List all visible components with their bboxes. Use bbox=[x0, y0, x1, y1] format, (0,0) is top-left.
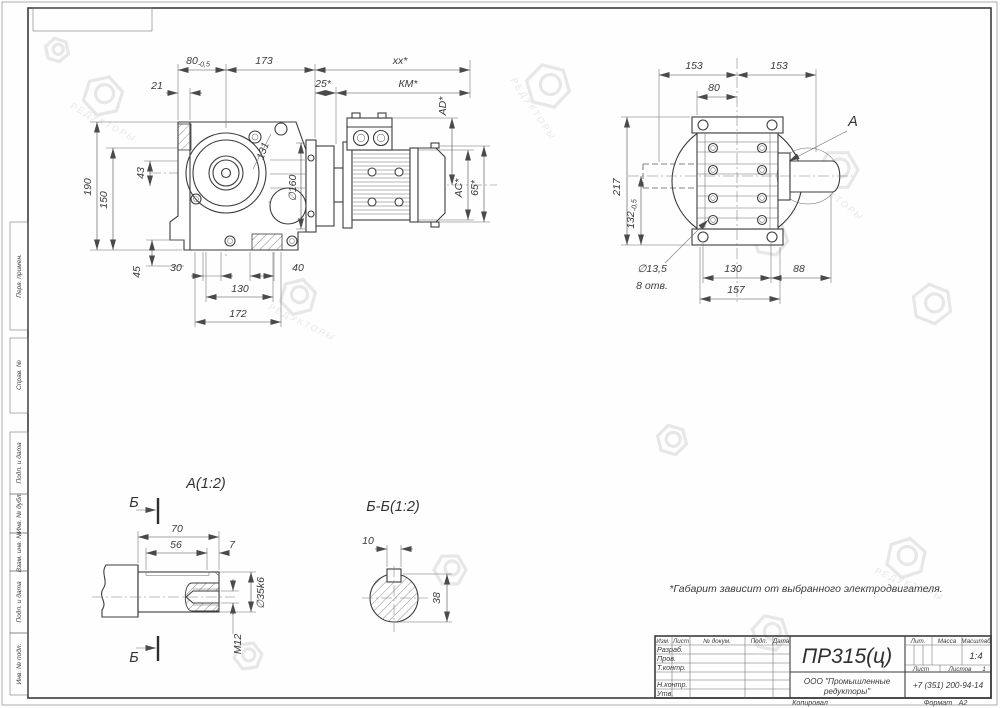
side-view: 80-0,5 173 xx* 21 25* КМ* 190 150 43 45 … bbox=[82, 55, 497, 327]
tb-row-nkontr: Н.контр. bbox=[657, 680, 687, 689]
copied-label: Копировал bbox=[792, 698, 828, 707]
dim-30: 30 bbox=[170, 262, 182, 274]
dim-56: 56 bbox=[170, 539, 182, 551]
dim-150: 150 bbox=[98, 191, 110, 209]
dim-88: 88 bbox=[793, 263, 805, 275]
format-value: А2 bbox=[958, 698, 968, 707]
format-label: Формат bbox=[924, 698, 953, 707]
company-phone: +7 (351) 200-94-14 bbox=[913, 681, 984, 690]
dim-153-left: 153 bbox=[685, 60, 703, 72]
tb-sheets-value: 1 bbox=[982, 666, 986, 673]
dim-25: 25* bbox=[314, 78, 332, 90]
company-line2: редукторы" bbox=[823, 687, 871, 696]
dim-45: 45 bbox=[131, 266, 143, 278]
section-mark-b-bottom: Б bbox=[129, 650, 138, 666]
doc-number: ПР315(ц) bbox=[802, 645, 892, 668]
tb-sheets-label: Листов bbox=[948, 666, 973, 673]
tb-col-list: Лист bbox=[672, 638, 689, 645]
drawing-sheet: РЕДУКТОРЫ РЕДУКТОРЫ РЕДУКТОРЫ РЕДУКТОРЫ … bbox=[0, 0, 1000, 708]
dim-80: 80-0,5 bbox=[186, 55, 210, 69]
dim-ac: AC* bbox=[453, 178, 465, 199]
view-a-label: А bbox=[847, 114, 858, 130]
dim-80-front: 80 bbox=[708, 82, 720, 94]
front-view: 153 153 80 217 132-0,5 130 88 157 ∅13,5 … bbox=[611, 58, 858, 305]
dim-21: 21 bbox=[150, 80, 163, 92]
dim-157: 157 bbox=[727, 284, 746, 296]
tb-row-utv: Утв. bbox=[656, 689, 673, 698]
dim-7: 7 bbox=[229, 539, 236, 551]
dim-40: 40 bbox=[292, 262, 304, 274]
dim-172: 172 bbox=[229, 308, 247, 320]
section-b-title: Б-Б(1:2) bbox=[366, 499, 420, 515]
dim-10: 10 bbox=[362, 535, 374, 547]
dim-xx: xx* bbox=[392, 55, 409, 67]
terminal-box bbox=[347, 118, 392, 150]
tb-scale-label: Масштаб bbox=[961, 637, 991, 645]
margin-label: Подп. и дата bbox=[15, 581, 23, 623]
dim-holes-count: 8 отв. bbox=[636, 280, 668, 292]
tb-scale-value: 1:4 bbox=[969, 651, 982, 662]
margin-label: Инв. № подл. bbox=[15, 643, 23, 684]
dim-38: 38 bbox=[431, 592, 443, 604]
dim-130-front: 130 bbox=[724, 263, 742, 275]
tb-row-prov: Пров. bbox=[657, 654, 676, 663]
tb-row-razrab: Разраб. bbox=[657, 645, 683, 654]
footnote: *Габарит зависит от выбранного электродв… bbox=[669, 583, 942, 595]
dim-160: ∅160 bbox=[287, 175, 299, 202]
detail-a-title: А(1:2) bbox=[185, 476, 226, 492]
dim-65: 65* bbox=[469, 179, 481, 196]
section-view-b: Б-Б(1:2) 10 38 bbox=[362, 499, 452, 632]
margin-label: Справ. № bbox=[16, 360, 23, 390]
top-left-stamp bbox=[33, 8, 152, 31]
dim-153-right: 153 bbox=[770, 60, 788, 72]
watermark-text: РЕДУКТОРЫ bbox=[69, 101, 139, 144]
detail-view-a: А(1:2) Б Б bbox=[92, 476, 267, 666]
dim-70: 70 bbox=[171, 523, 183, 535]
tb-lit-label: Лит. bbox=[910, 638, 926, 645]
tb-col-izm: Изм. bbox=[656, 638, 669, 645]
dim-43: 43 bbox=[135, 167, 147, 179]
watermark-text: РЕДУКТОРЫ bbox=[267, 302, 338, 343]
dim-ad: AD* bbox=[437, 96, 449, 117]
dim-217: 217 bbox=[611, 177, 623, 197]
dim-holes-dia: ∅13,5 bbox=[637, 263, 667, 275]
tb-col-podp: Подп. bbox=[751, 637, 768, 645]
margin-label: Инв. № дубл. bbox=[15, 493, 23, 534]
tb-col-data: Дата bbox=[772, 638, 790, 645]
company-line1: ООО "Промышленные bbox=[804, 677, 891, 686]
section-mark-b-top: Б bbox=[129, 495, 138, 511]
margin-label: Подп. и дата bbox=[15, 442, 23, 484]
tb-sheet-label: Лист bbox=[912, 666, 929, 673]
dim-km: КМ* bbox=[398, 78, 418, 90]
dim-m12: M12 bbox=[232, 634, 244, 655]
tb-row-tkontr: Т.контр. bbox=[657, 663, 686, 672]
margin-label: Перв. примен. bbox=[16, 254, 23, 298]
dim-130: 130 bbox=[231, 283, 249, 295]
margin-column: Перв. примен. Справ. № Подп. и дата Инв.… bbox=[10, 222, 28, 695]
dim-190: 190 bbox=[82, 178, 94, 196]
dim-35k6: ∅35k6 bbox=[255, 577, 267, 609]
tb-col-ndoc: № докум. bbox=[703, 637, 731, 645]
title-block: Изм. Лист № докум. Подп. Дата Разраб. Пр… bbox=[655, 636, 991, 707]
dim-173: 173 bbox=[255, 55, 273, 67]
margin-label: Взам. инв. № bbox=[16, 532, 23, 573]
tb-mass-label: Масса bbox=[938, 638, 957, 645]
watermark-text: РЕДУКТОРЫ bbox=[509, 76, 558, 143]
